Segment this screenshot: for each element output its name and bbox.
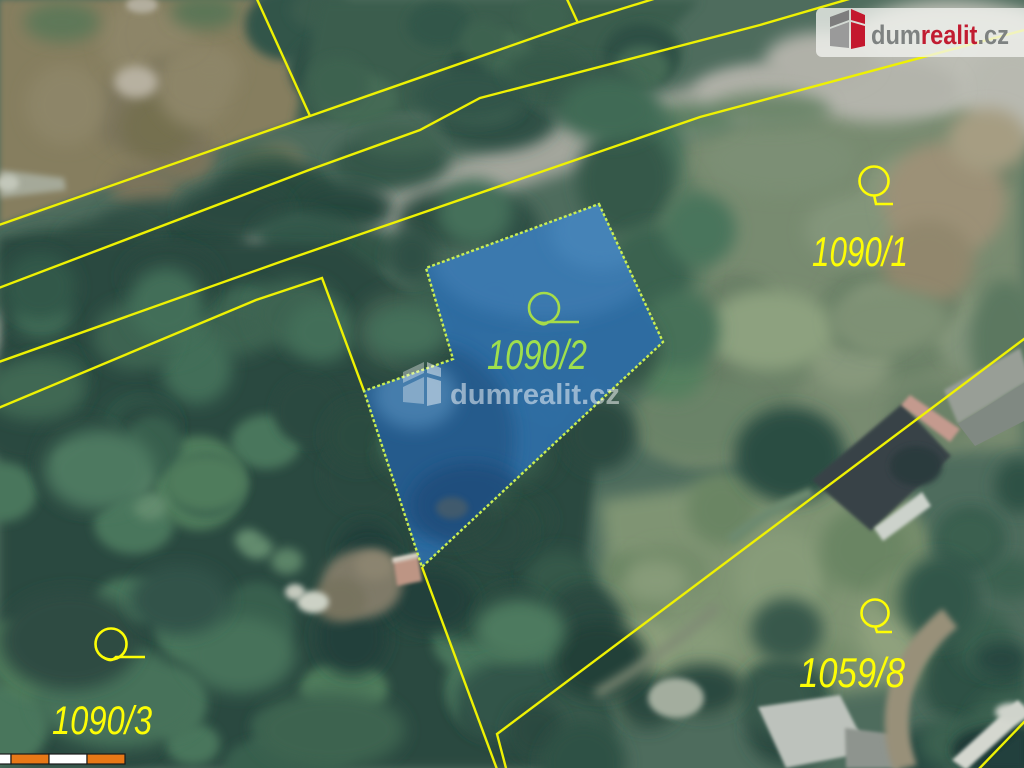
svg-text:dumrealit.cz: dumrealit.cz [871, 20, 1009, 50]
svg-text:dumrealit.cz: dumrealit.cz [450, 379, 620, 411]
svg-text:1090/1: 1090/1 [812, 228, 908, 275]
svg-text:1090/2: 1090/2 [487, 331, 587, 378]
svg-text:1059/8: 1059/8 [799, 649, 906, 696]
svg-text:1090/3: 1090/3 [52, 699, 152, 743]
